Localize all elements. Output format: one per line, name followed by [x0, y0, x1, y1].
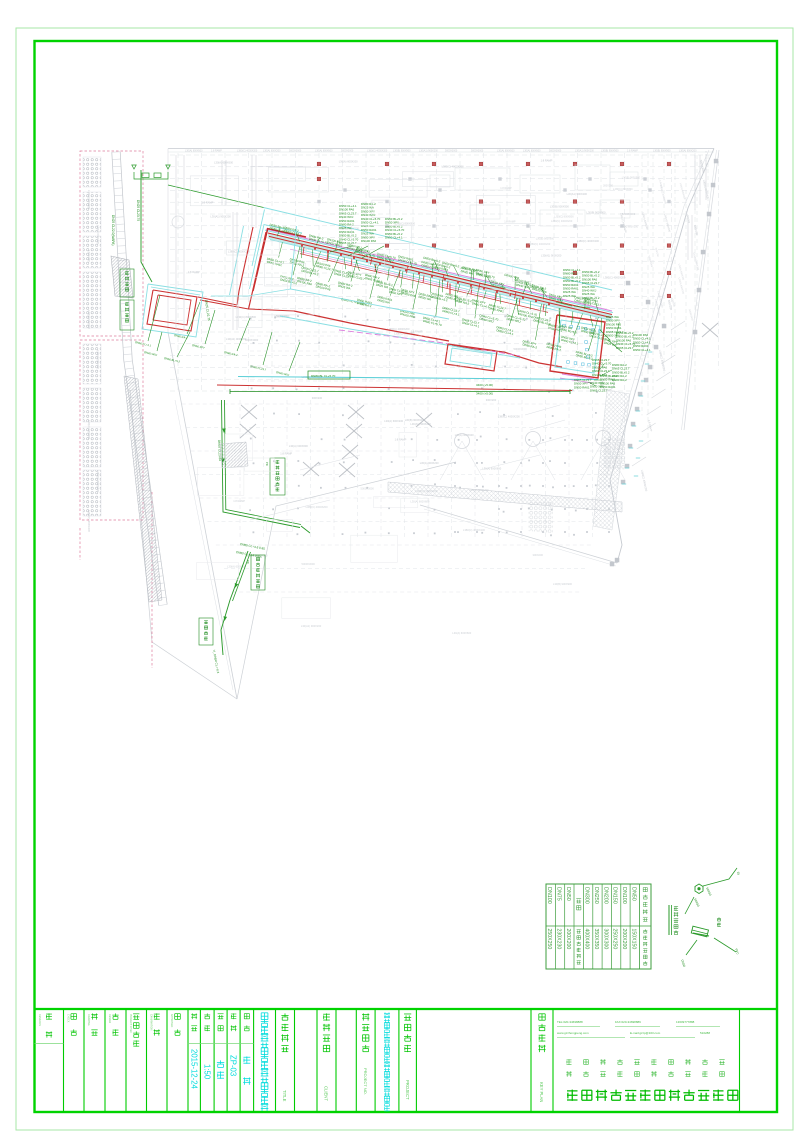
svg-text:APPROVED: APPROVED [170, 1014, 173, 1028]
svg-text:300X200: 300X200 [486, 398, 497, 402]
svg-text:L30(B) 900X900: L30(B) 900X900 [393, 150, 411, 153]
svg-text:PROJECT CHIEF: PROJECT CHIEF [129, 1014, 132, 1033]
svg-text:1:50: 1:50 [202, 1064, 211, 1080]
svg-text:DN100: DN100 [546, 887, 552, 904]
svg-text:EXAMINATION: EXAMINATION [150, 1014, 153, 1031]
svg-text:1:8 RAMP: 1:8 RAMP [504, 221, 516, 224]
svg-text:L30(A) 600X200: L30(A) 600X200 [384, 419, 403, 423]
svg-text:CHECK: CHECK [67, 1014, 70, 1023]
svg-text:TEL:020-34698888: TEL:020-34698888 [557, 1020, 583, 1024]
svg-text:L30(A) 600X600: L30(A) 600X600 [214, 160, 233, 164]
svg-text:5000X3000: 5000X3000 [302, 562, 316, 566]
svg-text:1:8 RAMP: 1:8 RAMP [280, 451, 292, 455]
svg-text:5000X3000: 5000X3000 [245, 338, 259, 342]
svg-text:5000X3000: 5000X3000 [549, 150, 562, 153]
svg-text:L30(B) 900X900: L30(B) 900X900 [653, 150, 671, 153]
svg-text:L380(C) 4000X200: L380(C) 4000X200 [306, 505, 328, 509]
svg-text:L30(A1) 900X200: L30(A1) 900X200 [210, 214, 231, 218]
svg-text:L30(A1) 900X200: L30(A1) 900X200 [301, 624, 322, 628]
svg-text:L30(A) 600X200: L30(A) 600X200 [339, 160, 358, 164]
svg-text:PROJECT: PROJECT [405, 1080, 410, 1100]
svg-text:L30(A) 600X600: L30(A) 600X600 [289, 444, 308, 448]
svg-text:1:8 RAMP: 1:8 RAMP [211, 150, 222, 153]
svg-text:3400 (+5.00): 3400 (+5.00) [476, 392, 493, 396]
svg-text:KEY PLAN: KEY PLAN [539, 1082, 544, 1102]
svg-text:PD: PD [265, 462, 269, 466]
svg-text:5000X3000: 5000X3000 [289, 150, 302, 153]
svg-text:DN50: DN50 [630, 887, 636, 901]
svg-text:300X200: 300X200 [533, 553, 544, 557]
svg-text:1:8 RAMP: 1:8 RAMP [500, 187, 512, 190]
svg-text:1:8 RAMP: 1:8 RAMP [627, 150, 638, 153]
svg-text:DN80 BL CL+5.70: DN80 BL CL+5.70 [311, 374, 336, 378]
svg-text:L30(A) 600X600: L30(A) 600X600 [452, 631, 471, 635]
svg-text:L30(B) 900X900: L30(B) 900X900 [587, 210, 606, 214]
svg-text:L380(C) 4000X200: L380(C) 4000X200 [603, 276, 625, 280]
svg-text:REMARKS: REMARKS [38, 1014, 41, 1026]
svg-text:DN100 PA6: DN100 PA6 [361, 239, 376, 243]
svg-text:TITLE: TITLE [282, 1090, 287, 1102]
svg-text:1:8 RAMP: 1:8 RAMP [188, 270, 200, 274]
svg-text:400X400: 400X400 [584, 929, 590, 950]
svg-text:L30(A1) 900X200: L30(A1) 900X200 [567, 192, 588, 196]
svg-text:L30(A) 600X600: L30(A) 600X600 [185, 150, 203, 153]
svg-text:150X150: 150X150 [630, 929, 636, 950]
svg-text:L30(A) 600X200: L30(A) 600X200 [420, 461, 439, 465]
svg-text:DN250: DN250 [593, 887, 599, 904]
svg-text:L380(C) 4000X200: L380(C) 4000X200 [498, 415, 520, 419]
svg-text:L30(B) 900X900: L30(B) 900X900 [550, 204, 569, 208]
svg-text:L30(A) 600X600: L30(A) 600X600 [523, 150, 541, 153]
svg-text:1:8 RAMP: 1:8 RAMP [541, 158, 553, 162]
svg-text:L30(A) 600X600: L30(A) 600X600 [410, 500, 429, 504]
svg-text:DN200: DN200 [602, 887, 608, 904]
svg-text:L380(C) 4000X200: L380(C) 4000X200 [529, 243, 551, 246]
svg-text:510288: 510288 [700, 1031, 710, 1035]
svg-text:L30(A1) 900X200: L30(A1) 900X200 [541, 253, 562, 257]
svg-text:5000X3000: 5000X3000 [471, 150, 484, 153]
svg-text:DN300: DN300 [584, 887, 590, 904]
svg-text:L30(A) 600X600: L30(A) 600X600 [227, 564, 246, 568]
svg-text:200X200: 200X200 [565, 929, 571, 950]
svg-text:200X200: 200X200 [621, 929, 627, 950]
svg-text:DN65 CL23.7: DN65 CL23.7 [590, 388, 608, 392]
svg-text:DN150: DN150 [612, 887, 618, 904]
svg-text:350X350: 350X350 [593, 929, 599, 950]
svg-text:DN100: DN100 [621, 887, 627, 904]
svg-text:L30(A) 600X200: L30(A) 600X200 [679, 150, 697, 153]
svg-text:L30(A1) 900X200: L30(A1) 900X200 [226, 337, 247, 341]
svg-text:5000X3000: 5000X3000 [445, 150, 458, 153]
svg-text:L30(A1) 900X200: L30(A1) 900X200 [419, 150, 438, 153]
svg-text:L30(A) 600X600: L30(A) 600X600 [497, 150, 515, 153]
svg-text:L30(B) 900X900: L30(B) 900X900 [405, 418, 424, 422]
svg-text:250X250: 250X250 [612, 929, 618, 950]
svg-text:5000X3000: 5000X3000 [514, 347, 528, 351]
svg-text:1:8 RAMP: 1:8 RAMP [233, 499, 245, 503]
svg-text:E-mail:gzzp@163.com: E-mail:gzzp@163.com [630, 1031, 661, 1035]
svg-text:PROJECT NO.: PROJECT NO. [363, 1068, 368, 1095]
svg-text:ZP-03: ZP-03 [229, 1055, 238, 1076]
svg-text:300X200: 300X200 [312, 396, 323, 400]
svg-text:DN25 CL22.0(WAPA): DN25 CL22.0(WAPA) [111, 215, 115, 245]
svg-text:L380(C) 4000X200: L380(C) 4000X200 [463, 528, 485, 532]
svg-text:DN50: DN50 [565, 887, 571, 901]
svg-text:3400 (+5.00): 3400 (+5.00) [476, 383, 493, 387]
svg-text:L30(B) 900X900: L30(B) 900X900 [622, 176, 641, 179]
svg-text:L380(C) 4000X200: L380(C) 4000X200 [237, 150, 258, 153]
svg-text:5000X3000: 5000X3000 [361, 487, 375, 491]
svg-text:www.gzzhongpeng.com: www.gzzhongpeng.com [557, 1031, 589, 1035]
svg-text:L380(C) 4000X200: L380(C) 4000X200 [367, 150, 388, 153]
svg-text:DN50 CL+4.1: DN50 CL+4.1 [385, 236, 403, 240]
svg-text:DN25 CL23.75: DN25 CL23.75 [136, 200, 140, 221]
svg-text:5000X3000: 5000X3000 [341, 150, 354, 153]
svg-text:1:8 RAMP: 1:8 RAMP [202, 201, 214, 205]
svg-text:L30(B) 900X900: L30(B) 900X900 [536, 238, 555, 241]
svg-text:L30(A) 600X200: L30(A) 600X200 [620, 225, 639, 228]
svg-text:L30(A) 600X600: L30(A) 600X600 [315, 150, 333, 153]
svg-text:FAX:020-34698889: FAX:020-34698889 [615, 1020, 641, 1024]
svg-text:LJ30(C) 800X800: LJ30(C) 800X800 [613, 188, 633, 191]
svg-text:DN75: DN75 [556, 887, 562, 901]
svg-text:300X300: 300X300 [602, 929, 608, 950]
svg-text:L380(C) 4000X200: L380(C) 4000X200 [577, 239, 599, 243]
svg-text:5000X3000: 5000X3000 [622, 212, 636, 216]
svg-text:13609777888: 13609777888 [676, 1020, 695, 1024]
svg-text:LJ30(C) 800X800: LJ30(C) 800X800 [554, 216, 574, 219]
svg-text:L30(B) 900X900: L30(B) 900X900 [601, 150, 619, 153]
svg-text:L380(C) 4000X200: L380(C) 4000X200 [551, 220, 573, 223]
svg-text:2015-12-24: 2015-12-24 [189, 1049, 198, 1090]
svg-text:L380(C) 4000X200: L380(C) 4000X200 [442, 164, 464, 168]
svg-text:DN50 RA61: DN50 RA61 [574, 385, 590, 389]
svg-text:CLIENT: CLIENT [324, 1086, 329, 1101]
svg-text:250X250: 250X250 [546, 929, 552, 950]
svg-text:L30(A1) 900X200: L30(A1) 900X200 [575, 150, 594, 153]
svg-text:L30(A) 600X200: L30(A) 600X200 [263, 150, 281, 153]
svg-text:DRAWING: DRAWING [87, 1014, 90, 1026]
svg-text:DESIGN: DESIGN [108, 1014, 111, 1023]
svg-text:L30(A) 600X600: L30(A) 600X600 [455, 433, 474, 437]
svg-text:DN50 CL+4.1: DN50 CL+4.1 [633, 348, 651, 352]
svg-text:1:8 RAMP: 1:8 RAMP [395, 437, 407, 441]
svg-text:L30(B) 900X900: L30(B) 900X900 [553, 582, 572, 586]
svg-text:230X230: 230X230 [556, 929, 562, 950]
